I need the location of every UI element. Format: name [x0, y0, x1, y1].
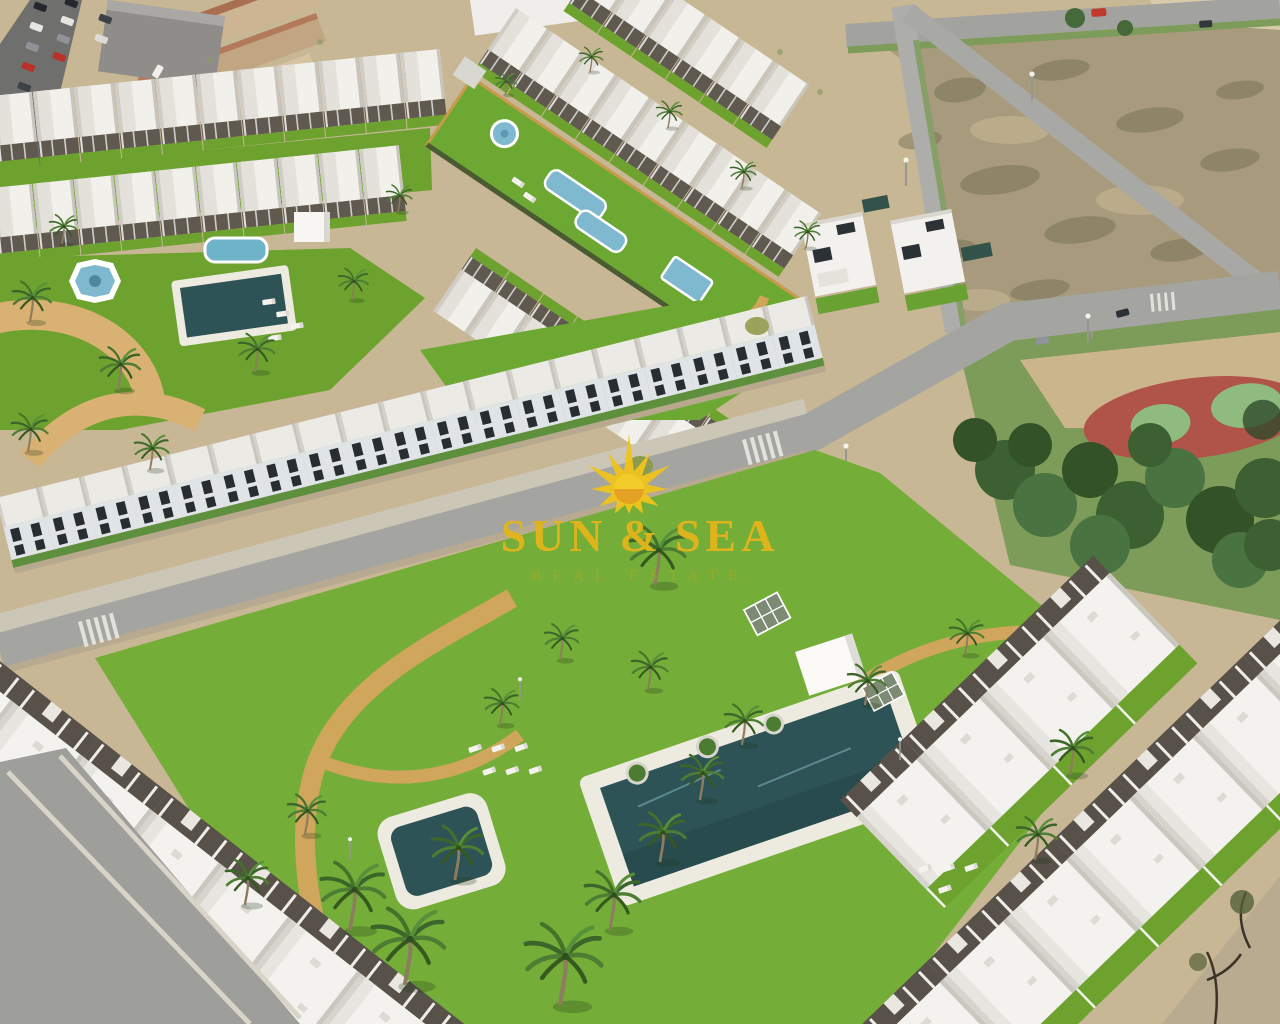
pool-house-side: [324, 212, 330, 242]
bare-tree-crown: [1230, 890, 1254, 914]
park-tree: [953, 418, 997, 462]
townhouse: [155, 75, 203, 155]
watermark-title: SUN&SEA: [501, 510, 780, 561]
townhouse: [114, 171, 162, 251]
park-tree: [1128, 423, 1172, 467]
park-tree: [1008, 423, 1052, 467]
townhouse: [114, 79, 162, 159]
scrub-bush: [817, 89, 823, 95]
townhouse: [196, 70, 244, 150]
car: [1199, 20, 1212, 28]
red-van: [1091, 8, 1106, 17]
townhouse: [74, 175, 122, 255]
pond-island: [89, 275, 101, 287]
aerial-render: SUN&SEA REAL ESTATE: [0, 0, 1280, 1024]
bare-tree-crown: [1189, 953, 1207, 971]
townhouse: [196, 162, 244, 242]
townhouse: [318, 58, 366, 138]
townhouse: [277, 62, 325, 142]
watermark-subtitle: REAL ESTATE: [532, 568, 748, 584]
tree: [1117, 20, 1133, 36]
townhouse: [237, 158, 285, 238]
townhouse: [155, 167, 203, 247]
townhouse: [237, 66, 285, 146]
aerial-render-screenshot: SUN&SEA REAL ESTATE: [0, 0, 1280, 1024]
townhouse: [359, 53, 407, 133]
scrub-bush: [777, 49, 783, 55]
street-tree: [745, 317, 769, 335]
townhouse: [400, 49, 448, 129]
rounded-pool: [205, 238, 267, 262]
scrub-bush: [317, 39, 323, 45]
scrub-bush: [207, 57, 213, 63]
townhouse: [33, 88, 81, 168]
tree: [1065, 8, 1085, 28]
townhouse: [74, 83, 122, 163]
